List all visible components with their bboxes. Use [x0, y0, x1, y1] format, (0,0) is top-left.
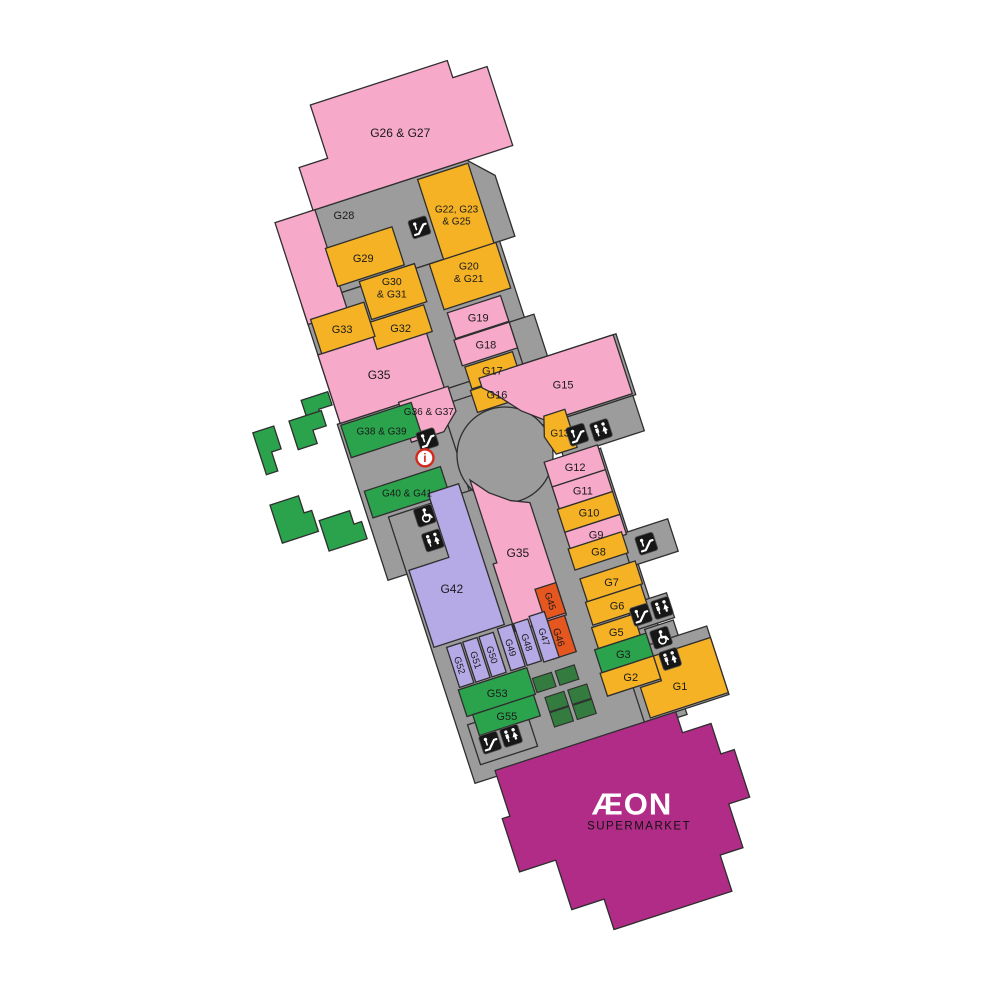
- unit-label-g19: G19: [468, 312, 489, 324]
- unit-label-g33: G33: [332, 324, 353, 336]
- info-icon[interactable]: i: [416, 449, 433, 466]
- unit-label-g53: G53: [487, 688, 508, 700]
- unit-label-g5: G5: [609, 627, 624, 639]
- unit-label-g9: G9: [589, 530, 604, 542]
- unit-label-g38-g39: G38 & G39: [357, 426, 407, 437]
- unit-label-g42: G42: [440, 582, 463, 596]
- unit-label-g6: G6: [610, 601, 625, 613]
- unit-label-g26-g27: G26 & G27: [370, 126, 430, 140]
- unit-label-g10: G10: [579, 508, 600, 520]
- unit-label-g8: G8: [591, 547, 606, 559]
- mall-floorplan: ÆONSUPERMARKETiG26 & G27G35G22, G23& G25…: [0, 0, 1000, 1000]
- aeon-supermarket-text: SUPERMARKET: [587, 821, 691, 833]
- mall-map-stage: GF ÆONSUPERMARKETiG26 & G27G35G22, G23& …: [0, 0, 1000, 1000]
- unit-label-g2: G2: [623, 672, 638, 684]
- unit-label-g13: G13: [550, 428, 569, 439]
- unit-label-g32: G32: [390, 323, 411, 335]
- unit-label-g55: G55: [496, 711, 517, 723]
- unit-label-g15: G15: [553, 379, 574, 391]
- unit-label-g40-g41: G40 & G41: [382, 489, 432, 500]
- aeon-logo-text: ÆON: [592, 787, 673, 822]
- unit-label-g16: G16: [487, 389, 508, 401]
- unit-label-g7: G7: [604, 577, 619, 589]
- unit-label-g11: G11: [573, 486, 593, 498]
- unit-label-g29: G29: [353, 253, 374, 265]
- corridor-label-g28: G28: [334, 210, 355, 222]
- unit-label-g35: G35: [507, 546, 530, 560]
- unit-label-g36-g37: G36 & G37: [404, 407, 454, 418]
- unit-label-g3: G3: [616, 649, 631, 661]
- unit-label-g1: G1: [673, 681, 688, 693]
- unit-label-g35-upper: G35: [368, 368, 391, 382]
- unit-label-g18: G18: [476, 339, 497, 351]
- unit-label-g12: G12: [565, 462, 586, 474]
- svg-text:i: i: [423, 451, 426, 465]
- unit-label-g17: G17: [482, 366, 503, 378]
